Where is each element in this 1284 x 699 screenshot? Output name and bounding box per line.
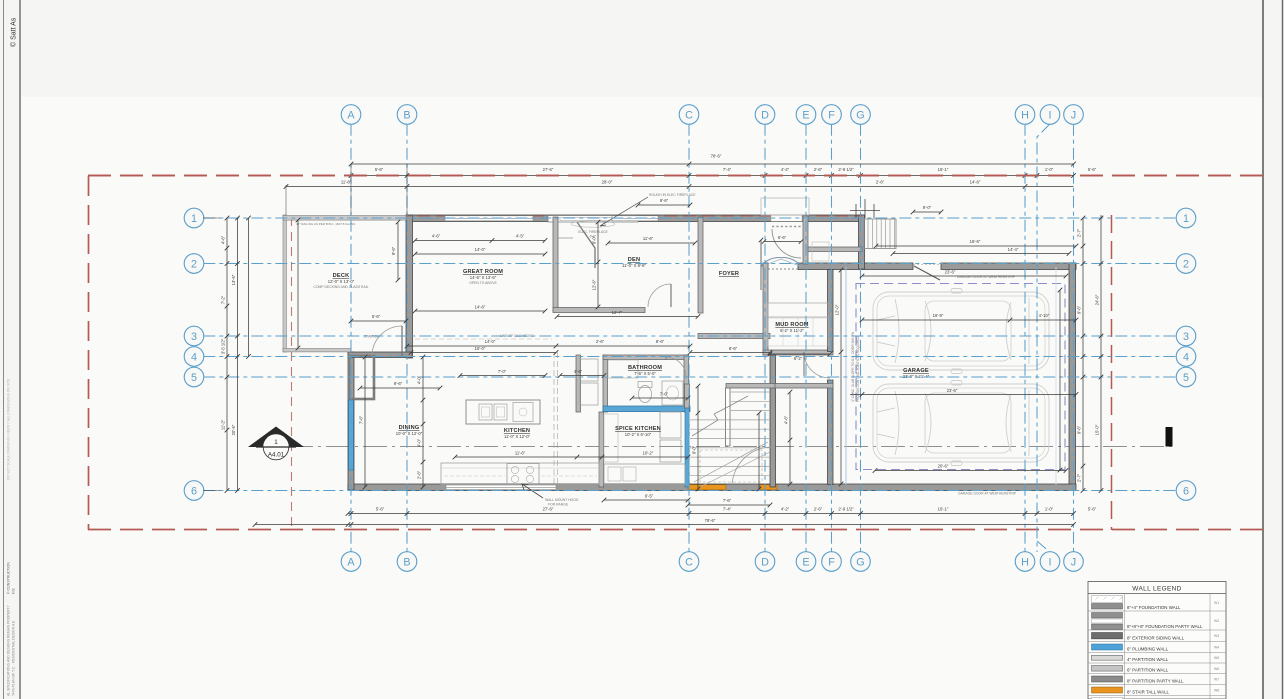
svg-text:9′-6″: 9′-6″	[391, 246, 396, 255]
svg-text:4′-6″: 4′-6″	[574, 369, 583, 374]
svg-text:16′-6″: 16′-6″	[970, 239, 981, 244]
svg-text:E: E	[802, 109, 809, 121]
svg-text:7′-0″: 7′-0″	[498, 369, 507, 374]
svg-text:4′-0″: 4′-0″	[417, 438, 422, 447]
svg-text:14′-0″: 14′-0″	[485, 339, 496, 344]
svg-text:4: 4	[1183, 351, 1189, 363]
svg-text:4′-6″: 4′-6″	[432, 234, 441, 239]
svg-text:A4.01: A4.01	[268, 452, 285, 459]
svg-text:5′-6″: 5′-6″	[1088, 507, 1097, 512]
svg-text:3′-5 1/2″: 3′-5 1/2″	[221, 338, 226, 354]
svg-text:1: 1	[274, 439, 278, 446]
svg-text:5′-6″: 5′-6″	[376, 507, 385, 512]
svg-text:4′-5″: 4′-5″	[516, 234, 525, 239]
svg-text:3: 3	[191, 331, 197, 343]
svg-text:4: 4	[191, 351, 197, 363]
svg-text:16′-0″: 16′-0″	[475, 346, 486, 351]
svg-text:3: 3	[1183, 331, 1189, 343]
svg-text:12′-0″: 12′-0″	[835, 304, 840, 315]
svg-text:10′-2″ X 6′-10″: 10′-2″ X 6′-10″	[625, 432, 652, 437]
svg-text:© Satt As: © Satt As	[10, 17, 18, 47]
svg-text:16′-1″: 16′-1″	[938, 507, 949, 512]
svg-text:20′-6″: 20′-6″	[231, 424, 236, 435]
svg-text:D: D	[761, 556, 769, 568]
svg-text:5′-6″: 5′-6″	[372, 314, 381, 319]
svg-text:7′-6″: 7′-6″	[359, 415, 364, 424]
svg-text:10′-0″ X 12′-0″: 10′-0″ X 12′-0″	[396, 431, 423, 436]
svg-text:11′-6″: 11′-6″	[643, 236, 654, 241]
svg-text:12′-7″: 12′-7″	[612, 310, 623, 315]
svg-text:4′-6″: 4′-6″	[784, 415, 789, 424]
svg-text:2′-7″: 2′-7″	[1077, 473, 1082, 482]
svg-text:23′-6″: 23′-6″	[945, 270, 956, 275]
svg-text:7′-2″: 7′-2″	[221, 295, 226, 304]
svg-text:24′-6″: 24′-6″	[1095, 294, 1100, 305]
svg-text:G: G	[856, 556, 864, 568]
svg-text:D: D	[761, 109, 769, 121]
svg-text:B: B	[403, 109, 410, 121]
svg-text:14′-0″: 14′-0″	[475, 247, 486, 252]
svg-text:J: J	[1071, 109, 1076, 121]
svg-text:5: 5	[191, 372, 197, 384]
svg-text:COMP DECKING AND GLASS RAIL: COMP DECKING AND GLASS RAIL	[313, 285, 368, 289]
svg-text:PROVIDE CONTROL JOINTS AS REQU: PROVIDE CONTROL JOINTS AS REQUIRED	[856, 336, 860, 402]
svg-text:11′-2″: 11′-2″	[221, 419, 226, 430]
svg-text:11′-6″: 11′-6″	[515, 451, 526, 456]
svg-text:GARAGE DOOR AT WEATHERSTRIP: GARAGE DOOR AT WEATHERSTRIP	[957, 275, 1016, 279]
svg-text:C: C	[685, 109, 693, 121]
svg-text:2: 2	[191, 258, 197, 270]
svg-text:I: I	[1049, 556, 1052, 568]
svg-text:W7: W7	[1214, 678, 1219, 682]
svg-text:2: 2	[1183, 258, 1189, 270]
svg-text:WALL LEGEND: WALL LEGEND	[1132, 586, 1181, 593]
svg-text:78′-6″: 78′-6″	[705, 518, 716, 523]
svg-text:4′-10″: 4′-10″	[1039, 313, 1050, 318]
svg-text:OPEN TO ABOVE: OPEN TO ABOVE	[469, 281, 497, 285]
svg-text:27′-6″: 27′-6″	[543, 167, 554, 172]
svg-text:8″+4″ FOUNDATION WALL: 8″+4″ FOUNDATION WALL	[1127, 605, 1181, 610]
svg-text:1: 1	[1183, 213, 1189, 225]
svg-text:F: F	[828, 109, 835, 121]
svg-text:7′-6″: 7′-6″	[660, 392, 669, 397]
svg-text:4′-2″: 4′-2″	[781, 507, 790, 512]
svg-text:6″ PLUMBING WALL: 6″ PLUMBING WALL	[1127, 646, 1169, 651]
svg-text:C: C	[685, 556, 693, 568]
svg-text:4″ PARTITION WALL: 4″ PARTITION WALL	[1127, 657, 1169, 662]
svg-text:A: A	[347, 109, 355, 121]
svg-text:8″+8″+8″ FOUNDATION PARTY WALL: 8″+8″+8″ FOUNDATION PARTY WALL	[1127, 624, 1203, 629]
svg-text:15′-0″: 15′-0″	[1095, 424, 1100, 435]
svg-text:9′-6″: 9′-6″	[1077, 425, 1082, 434]
svg-text:9′-0″: 9′-0″	[923, 205, 932, 210]
svg-text:N.E: N.E	[12, 588, 16, 595]
svg-text:W8: W8	[1214, 689, 1219, 693]
svg-text:W3: W3	[1214, 634, 1219, 638]
svg-text:6: 6	[1183, 485, 1189, 497]
svg-text:WALL MOUNT HOOD: WALL MOUNT HOOD	[545, 498, 579, 502]
svg-text:I: I	[1049, 109, 1052, 121]
svg-text:13′-6″: 13′-6″	[231, 274, 236, 285]
svg-text:7′-6″: 7′-6″	[723, 498, 732, 503]
svg-text:28′-0″: 28′-0″	[602, 180, 613, 185]
svg-text:GARAGE DOOR AT WEATHERSTRIP: GARAGE DOOR AT WEATHERSTRIP	[958, 492, 1017, 496]
svg-text:6′-2″: 6′-2″	[794, 356, 803, 361]
svg-text:FOYER: FOYER	[719, 271, 739, 277]
svg-text:5: 5	[1183, 372, 1189, 384]
svg-text:8″ EXTERIOR SIDING WALL: 8″ EXTERIOR SIDING WALL	[1127, 635, 1185, 640]
svg-text:W1: W1	[1214, 601, 1219, 605]
svg-text:ELEC. FIREPLACE: ELEC. FIREPLACE	[578, 230, 608, 234]
svg-text:2′-6″: 2′-6″	[596, 339, 605, 344]
svg-text:1: 1	[191, 213, 197, 225]
svg-text:9′-6″: 9′-6″	[1077, 305, 1082, 314]
svg-text:5′-6″: 5′-6″	[1088, 167, 1097, 172]
svg-text:THIS PLAN OF T.C. · RESIDENTIA: THIS PLAN OF T.C. · RESIDENTIAL DESIGN A…	[12, 620, 16, 696]
svg-text:7′-4″: 7′-4″	[723, 167, 732, 172]
svg-text:4′-2″: 4′-2″	[781, 167, 790, 172]
svg-text:7′-4″: 7′-4″	[723, 507, 732, 512]
svg-text:20′-6″: 20′-6″	[938, 464, 949, 469]
svg-text:A: A	[347, 556, 355, 568]
svg-text:6′-6″: 6′-6″	[660, 198, 669, 203]
svg-text:1′-0″: 1′-0″	[1045, 167, 1054, 172]
svg-text:9′-0″: 9′-0″	[692, 445, 697, 454]
svg-text:W4: W4	[1214, 646, 1219, 650]
svg-text:10′-2″: 10′-2″	[643, 451, 654, 456]
svg-text:14′-4″: 14′-4″	[1008, 247, 1019, 252]
svg-text:11′-8″: 11′-8″	[341, 180, 352, 185]
svg-text:2′-7″: 2′-7″	[1077, 228, 1082, 237]
svg-text:G: G	[856, 109, 864, 121]
svg-text:16′-1″: 16′-1″	[938, 167, 949, 172]
svg-text:27′-6″: 27′-6″	[543, 507, 554, 512]
svg-text:12′-6″: 12′-6″	[592, 279, 597, 290]
svg-text:F: F	[828, 556, 835, 568]
svg-text:16′-9″: 16′-9″	[933, 313, 944, 318]
svg-text:6″ PARTITION WALL: 6″ PARTITION WALL	[1127, 667, 1169, 672]
svg-text:2′-9 1/2″: 2′-9 1/2″	[838, 507, 854, 512]
svg-text:14′-6″ X 13′-6″: 14′-6″ X 13′-6″	[470, 275, 497, 280]
svg-text:4′-0″: 4′-0″	[417, 375, 422, 384]
svg-text:6: 6	[191, 485, 197, 497]
svg-text:8″ STAIR TALL WALL: 8″ STAIR TALL WALL	[1127, 689, 1170, 694]
svg-text:2′-6″: 2′-6″	[876, 180, 885, 185]
svg-text:7′-6″ X 5′-0″: 7′-6″ X 5′-0″	[634, 371, 656, 376]
svg-text:W5: W5	[1214, 656, 1219, 660]
svg-text:J: J	[1071, 556, 1076, 568]
svg-text:23′-6″: 23′-6″	[947, 388, 958, 393]
svg-text:8′-6″: 8′-6″	[656, 339, 665, 344]
svg-text:2′-9 1/2″: 2′-9 1/2″	[838, 167, 854, 172]
svg-text:14′-6″: 14′-6″	[970, 180, 981, 185]
svg-text:9′-0″: 9′-0″	[592, 235, 597, 244]
svg-text:2′-6″: 2′-6″	[814, 167, 823, 172]
svg-text:5′-6″: 5′-6″	[375, 167, 384, 172]
svg-text:© CONSTRUCTION: © CONSTRUCTION	[7, 562, 11, 594]
svg-text:AL SPECIFICATIONS AND DESIGNS: AL SPECIFICATIONS AND DESIGNS REMAIN PRO…	[7, 605, 11, 696]
svg-text:42″ RAILING AS PER B.B.C. 1607: 42″ RAILING AS PER B.B.C. 1607.8 GLASS	[296, 222, 355, 226]
svg-text:14′-6″: 14′-6″	[475, 305, 486, 310]
svg-text:4″ CONC. SLAB SLOPE TO O.H. DO: 4″ CONC. SLAB SLOPE TO O.H. DOOR MIN 2%	[851, 332, 855, 402]
svg-text:4′-6″: 4′-6″	[221, 235, 226, 244]
svg-text:H: H	[1021, 109, 1029, 121]
svg-text:2′-6″: 2′-6″	[814, 507, 823, 512]
svg-text:H: H	[1021, 556, 1029, 568]
svg-text:E: E	[802, 556, 809, 568]
svg-text:6′-5″: 6′-5″	[645, 494, 654, 499]
svg-text:78′-6″: 78′-6″	[711, 154, 722, 159]
svg-text:6′-6″: 6′-6″	[778, 235, 787, 240]
svg-text:DO NOT SCALE DRAWINGS VERIFY: DO NOT SCALE DRAWINGS VERIFY ALL DIMENSI…	[7, 378, 11, 480]
svg-text:W6: W6	[1214, 667, 1219, 671]
svg-text:B: B	[403, 556, 410, 568]
svg-text:9′-6″: 9′-6″	[394, 381, 403, 386]
svg-text:2′-6″: 2′-6″	[417, 470, 422, 479]
svg-text:8′-6″: 8′-6″	[729, 346, 738, 351]
svg-text:W2: W2	[1214, 619, 1219, 623]
svg-text:11′-0″ X 12′-0″: 11′-0″ X 12′-0″	[504, 434, 531, 439]
svg-text:1′-0″: 1′-0″	[1045, 507, 1054, 512]
svg-text:6′-2″ X 11′-2″: 6′-2″ X 11′-2″	[780, 328, 804, 333]
svg-text:8″ PARTITION PARTY WALL: 8″ PARTITION PARTY WALL	[1127, 678, 1184, 683]
